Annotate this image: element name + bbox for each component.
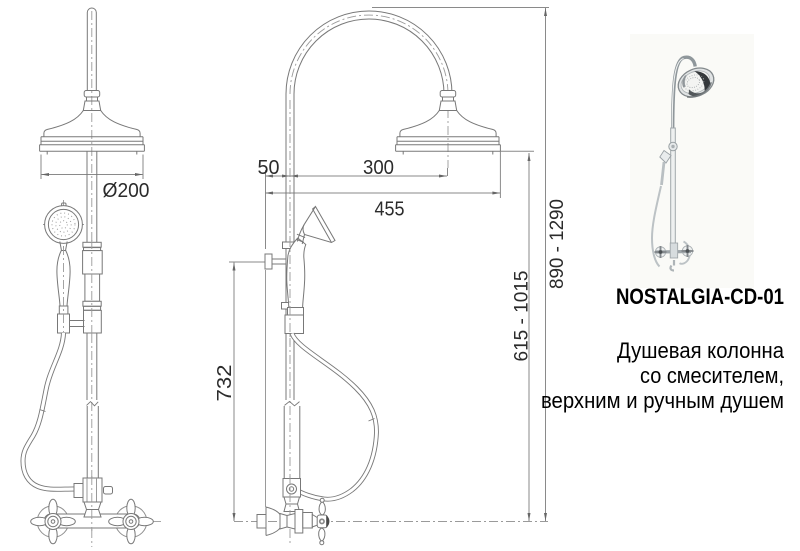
svg-text:455: 455 [375, 198, 405, 221]
svg-text:50: 50 [258, 156, 280, 179]
svg-text:Душевая колонна: Душевая колонна [617, 338, 785, 363]
svg-text:NOSTALGIA-CD-01: NOSTALGIA-CD-01 [616, 284, 784, 309]
svg-text:732: 732 [214, 365, 236, 402]
svg-text:300: 300 [363, 156, 394, 179]
svg-text:615 - 1015: 615 - 1015 [511, 270, 533, 361]
svg-text:верхним и ручным душем: верхним и ручным душем [541, 388, 784, 413]
svg-text:Ø200: Ø200 [103, 179, 150, 202]
svg-text:со смесителем,: со смесителем, [640, 363, 784, 388]
svg-text:890 - 1290: 890 - 1290 [546, 199, 568, 289]
